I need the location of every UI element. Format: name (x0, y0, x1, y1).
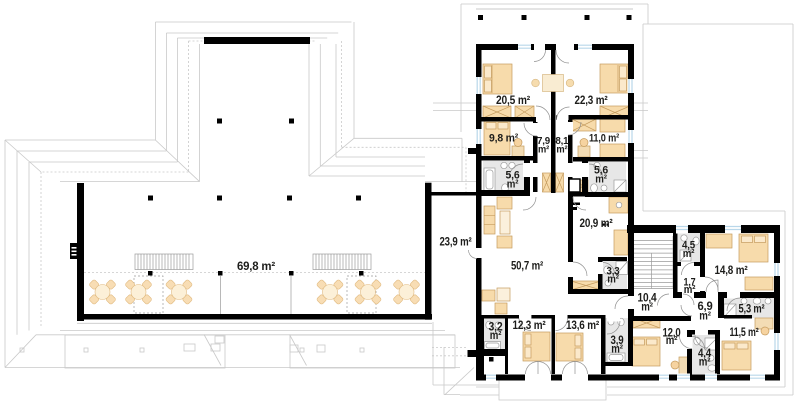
svg-text:m²: m² (538, 145, 550, 156)
svg-text:m²: m² (641, 302, 653, 314)
svg-text:69,8 m²: 69,8 m² (237, 259, 275, 273)
svg-text:20,9 m²: 20,9 m² (580, 216, 613, 230)
svg-text:13,6 m²: 13,6 m² (566, 318, 599, 332)
svg-text:20,5 m²: 20,5 m² (496, 93, 530, 107)
svg-text:m²: m² (666, 335, 678, 347)
svg-text:50,7 m²: 50,7 m² (511, 259, 543, 273)
svg-text:9,8 m²: 9,8 m² (489, 133, 519, 145)
svg-text:12,3 m²: 12,3 m² (513, 318, 546, 332)
svg-text:m²: m² (595, 174, 607, 186)
svg-text:23,9 m²: 23,9 m² (440, 235, 472, 249)
svg-text:5,3 m²: 5,3 m² (739, 302, 765, 316)
svg-text:m²: m² (556, 145, 568, 156)
svg-text:14,8 m²: 14,8 m² (715, 263, 748, 277)
svg-text:m²: m² (490, 330, 502, 342)
svg-text:m²: m² (699, 311, 711, 323)
svg-text:m²: m² (699, 357, 711, 369)
svg-text:11,0 m²: 11,0 m² (589, 133, 619, 145)
svg-text:m²: m² (611, 344, 623, 356)
svg-text:m²: m² (684, 284, 696, 296)
svg-text:m²: m² (507, 179, 519, 191)
svg-text:11,5 m²: 11,5 m² (730, 325, 759, 339)
svg-text:m²: m² (607, 274, 619, 286)
svg-text:m²: m² (683, 248, 695, 260)
svg-text:22,3 m²: 22,3 m² (575, 93, 608, 107)
